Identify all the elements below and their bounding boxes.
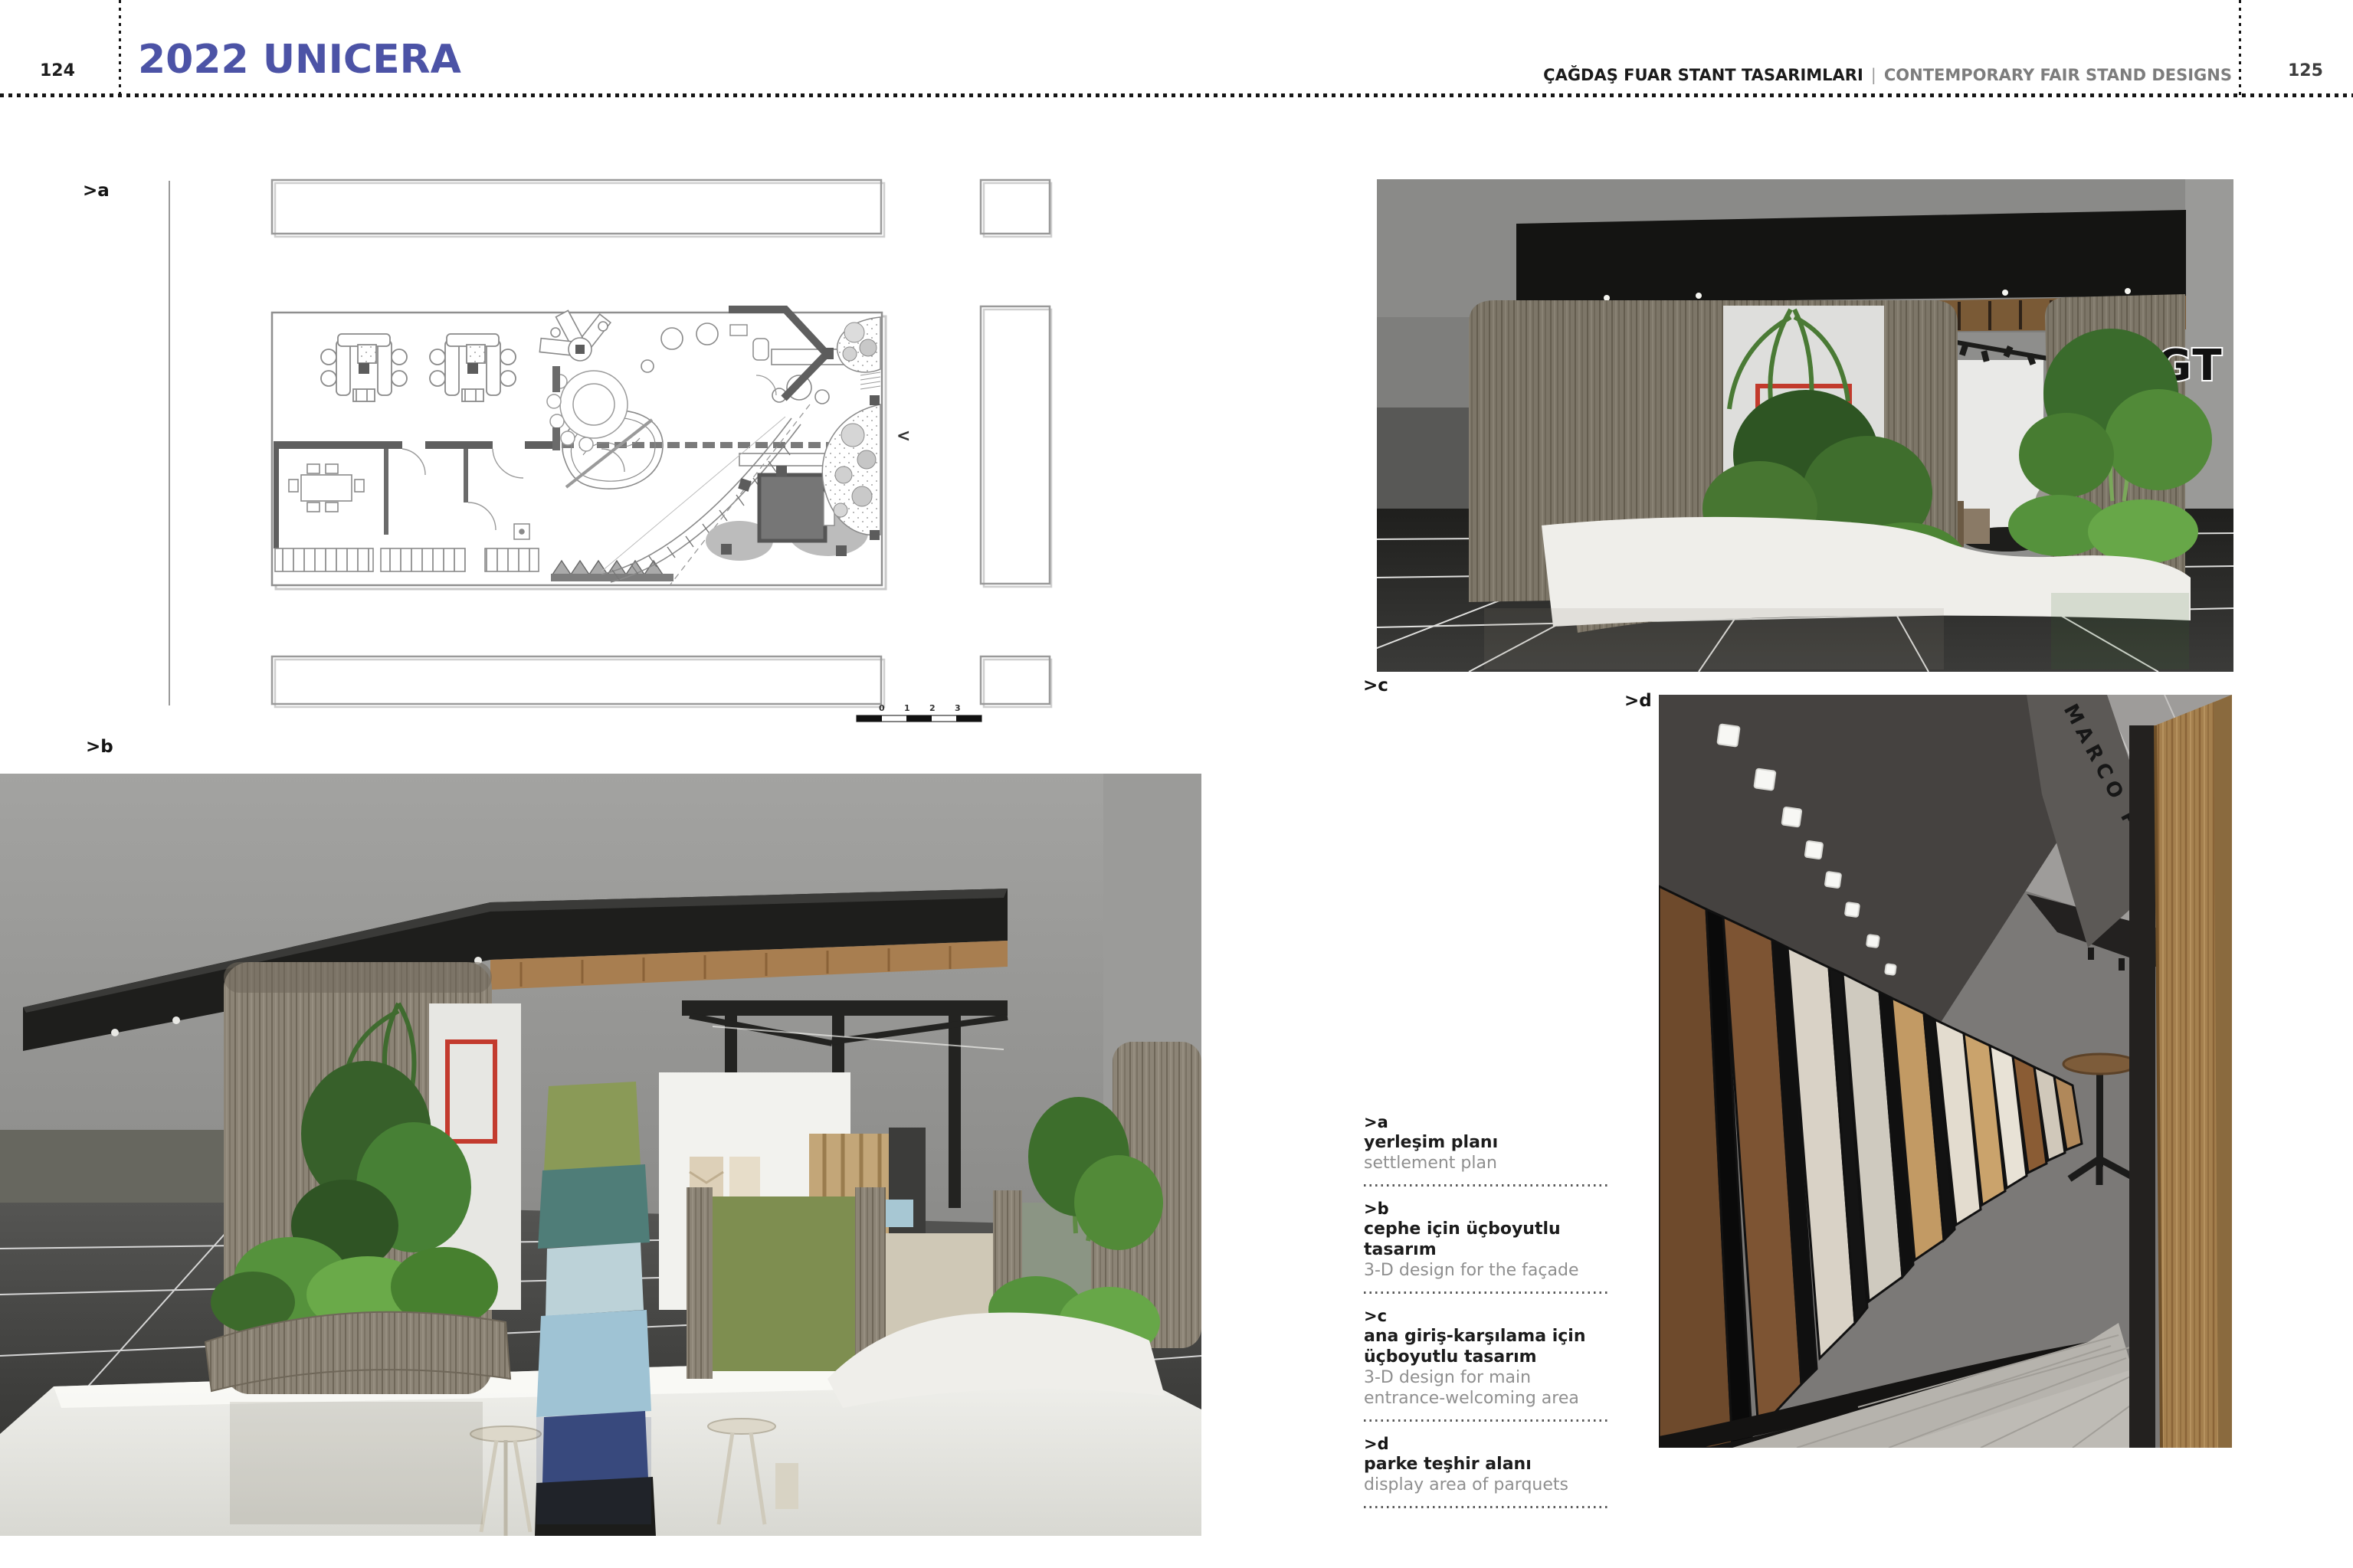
reflections	[230, 1402, 651, 1524]
wood-column	[2129, 695, 2232, 1448]
caption-id: >c	[1364, 1306, 1607, 1326]
caption-id: >a	[1364, 1112, 1607, 1132]
caption-block: >a yerleşim planı settlement plan >b cep…	[1364, 1112, 1607, 1521]
book-spread: 124 2022 UNICERA ÇAĞDAŞ FUAR STANT TASAR…	[0, 0, 2353, 1568]
caption-item-d: >d parke teşhir alanı display area of pa…	[1364, 1434, 1607, 1508]
caption-english: 3-D design for main entrance-welcoming a…	[1364, 1367, 1607, 1409]
scale-0: 0	[879, 703, 885, 713]
header-divider-left	[119, 0, 121, 97]
facade-render	[0, 774, 1201, 1536]
page-title: 2022 UNICERA	[138, 37, 461, 83]
caption-id: >d	[1364, 1434, 1607, 1454]
caption-divider	[1364, 1506, 1607, 1508]
header-rule	[0, 93, 2353, 97]
caption-item-c: >c ana giriş-karşılama için üçboyutlu ta…	[1364, 1306, 1607, 1422]
stand-plan	[272, 309, 886, 589]
scale-1: 1	[904, 703, 910, 713]
caption-turkish: yerleşim planı	[1364, 1132, 1607, 1153]
header-divider-right	[2239, 0, 2241, 97]
shelving	[275, 548, 539, 571]
page-number-left: 124	[40, 61, 75, 80]
caption-english: display area of parquets	[1364, 1475, 1607, 1495]
title-separator: |	[1863, 66, 1884, 84]
plan-nav-arrow: <	[896, 427, 910, 446]
neighbour-stand-right	[981, 306, 1051, 587]
figure-d-label: >d	[1624, 691, 1652, 711]
caption-turkish: parke teşhir alanı	[1364, 1454, 1607, 1475]
caption-divider	[1364, 1419, 1607, 1422]
page-number-right: 125	[2288, 61, 2323, 80]
title-turkish: ÇAĞDAŞ FUAR STANT TASARIMLARI	[1543, 66, 1863, 84]
scale-2: 2	[929, 703, 936, 713]
neighbour-stand-bottom	[272, 656, 1051, 707]
caption-id: >b	[1364, 1199, 1607, 1219]
scale-bar: 0 1 2 3	[857, 703, 982, 722]
figure-c-label: >c	[1363, 676, 1388, 696]
caption-turkish: cephe için üçboyutlu tasarım	[1364, 1219, 1607, 1260]
caption-english: settlement plan	[1364, 1153, 1607, 1174]
caption-turkish: ana giriş-karşılama için üçboyutlu tasar…	[1364, 1326, 1607, 1367]
neighbour-stand-top	[272, 180, 1051, 237]
title-english: CONTEMPORARY FAIR STAND DESIGNS	[1884, 66, 2232, 84]
page-title-right: ÇAĞDAŞ FUAR STANT TASARIMLARI|CONTEMPORA…	[1543, 66, 2232, 84]
settlement-plan-drawing: < 0 1 2 3	[65, 175, 1054, 745]
caption-divider	[1364, 1184, 1607, 1187]
caption-divider	[1364, 1291, 1607, 1294]
caption-english: 3-D design for the façade	[1364, 1260, 1607, 1281]
caption-item-a: >a yerleşim planı settlement plan	[1364, 1112, 1607, 1187]
small-office	[514, 524, 529, 539]
caption-item-b: >b cephe için üçboyutlu tasarım 3-D desi…	[1364, 1199, 1607, 1294]
parquet-display-render: MARCO POLO	[1659, 695, 2232, 1448]
entrance-render: AGT	[1377, 179, 2233, 672]
figure-b-label: >b	[86, 737, 113, 757]
scale-3: 3	[955, 703, 961, 713]
